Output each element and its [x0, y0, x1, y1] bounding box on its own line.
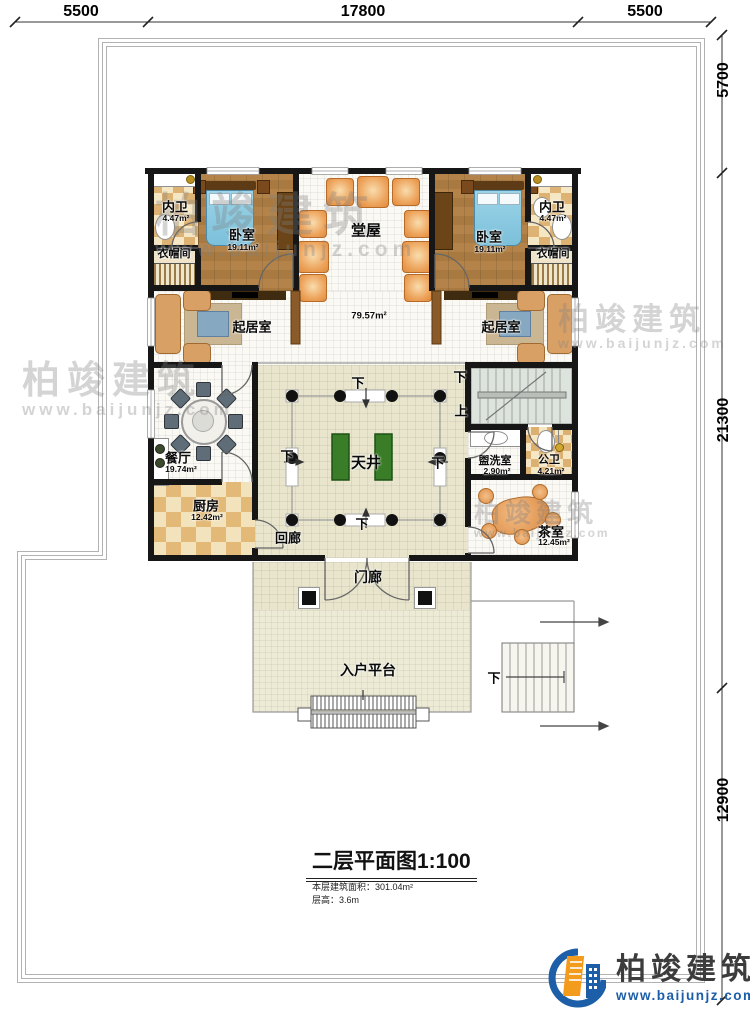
tv: [232, 292, 258, 298]
dim-right-3: 12900: [715, 778, 733, 823]
watermark-url: www.baijunjz.com: [558, 335, 727, 351]
plan-notes: 本层建筑面积：301.04m² 层高：3.6m: [312, 881, 413, 907]
toilet: [537, 430, 555, 453]
stair-down-label: 下: [487, 668, 500, 687]
public-bath-area: 4.21m²: [538, 466, 565, 476]
courtyard-label: 天井: [351, 452, 381, 473]
cloak-left-label: 衣帽间: [158, 245, 191, 261]
stair-down-label: 下: [453, 367, 466, 386]
bedroom-left-label: 卧室: [229, 225, 255, 244]
brand-url: www.baijunjz.com: [616, 988, 750, 1003]
armchair: [517, 290, 545, 311]
corridor-label: 回廊: [275, 528, 301, 547]
tv: [472, 292, 498, 298]
wardrobe: [277, 192, 296, 250]
sofa: [547, 294, 573, 354]
dining-chair: [228, 414, 243, 429]
cloak-cabinet: [153, 263, 198, 286]
tea-stool: [514, 529, 530, 545]
bed-headboard: [202, 181, 256, 190]
pillow: [209, 193, 230, 205]
pillow: [477, 193, 498, 205]
cloak-cabinet: [531, 263, 576, 286]
porch-column: [299, 588, 319, 608]
wardrobe: [434, 192, 453, 250]
dining-chair: [196, 382, 211, 397]
hall-chair: [299, 274, 327, 302]
nightstand: [257, 180, 270, 194]
bedroom-left-area: 19.11m²: [227, 242, 258, 252]
bed-headboard: [470, 181, 524, 190]
brand-logo-text: 柏竣建筑 www.baijunjz.com: [616, 955, 750, 1003]
armchair: [183, 290, 211, 311]
hall-table: [357, 176, 389, 208]
tea-stool: [481, 523, 497, 539]
sofa: [155, 294, 181, 354]
dim-top-2: 17800: [341, 3, 386, 21]
porch-column: [415, 588, 435, 608]
bedroom-right-area: 19.11m²: [474, 244, 505, 254]
plan-area-note: 本层建筑面积：301.04m²: [312, 881, 413, 894]
living-right-label: 起居室: [481, 317, 520, 336]
pillow: [231, 193, 252, 205]
bath-left-area: 4.47m²: [163, 213, 190, 223]
floor-plan-page: 柏竣建筑 www.baijunjz.com 柏竣建筑 www.baijunjz.…: [0, 0, 750, 1025]
lamp: [558, 430, 559, 443]
dining-table-center: [192, 410, 214, 432]
public-bath-label: 公卫: [538, 451, 560, 467]
bath-right-area: 4.47m²: [540, 213, 567, 223]
dim-top-1: 5500: [63, 3, 99, 21]
plan-title: 二层平面图1:100: [306, 845, 477, 882]
tearoom-area: 12.45m²: [538, 537, 570, 547]
faucet: [186, 175, 195, 184]
dim-top-3: 5500: [627, 3, 663, 21]
cloak-right-label: 衣帽间: [537, 245, 570, 261]
stove-burner: [155, 444, 165, 454]
stove-burner: [155, 458, 165, 468]
dim-right-1: 5700: [715, 62, 733, 98]
faucet: [533, 175, 542, 184]
sink: [484, 431, 508, 445]
tea-stool: [478, 488, 494, 504]
hall-chair: [326, 178, 354, 206]
hall-chair: [404, 210, 432, 238]
living-left-label: 起居室: [232, 317, 271, 336]
nightstand: [461, 180, 474, 194]
hall-chair: [392, 178, 420, 206]
dining-chair: [196, 446, 211, 461]
brand-name: 柏竣建筑: [616, 955, 750, 985]
living-total-area: 79.57m²: [351, 311, 386, 322]
hall-label: 堂屋: [351, 220, 381, 241]
stair-down-label: 下: [355, 514, 368, 533]
dining-area: 19.74m²: [165, 464, 197, 474]
stair-down-label: 下: [351, 373, 364, 392]
washroom-area: 2.90m²: [484, 466, 511, 476]
hall-chair: [299, 210, 327, 238]
rug-center: [197, 311, 229, 337]
armchair: [183, 343, 211, 364]
pillow: [499, 193, 520, 205]
brand-logo: 柏竣建筑 www.baijunjz.com: [548, 948, 750, 1010]
dining-chair: [164, 414, 179, 429]
tea-stool: [532, 484, 548, 500]
hall-chair: [404, 274, 432, 302]
kitchen-area: 12.42m²: [191, 512, 223, 522]
brand-logo-icon: [548, 948, 606, 1010]
bedroom-right-label: 卧室: [476, 227, 502, 246]
plan-height-note: 层高：3.6m: [312, 894, 413, 907]
dim-right-2: 21300: [715, 398, 733, 443]
porch-label: 门廊: [354, 567, 382, 587]
watermark-text: 柏竣建筑: [558, 304, 727, 335]
stair-up-label: 上: [454, 401, 467, 420]
stair-down-label: 下: [431, 453, 444, 472]
hall-table: [402, 241, 434, 273]
armchair: [517, 343, 545, 364]
platform-label: 入户平台: [340, 660, 396, 680]
watermark: 柏竣建筑 www.baijunjz.com: [558, 304, 727, 351]
stair-down-label: 下: [280, 446, 293, 465]
hall-table: [297, 241, 329, 273]
